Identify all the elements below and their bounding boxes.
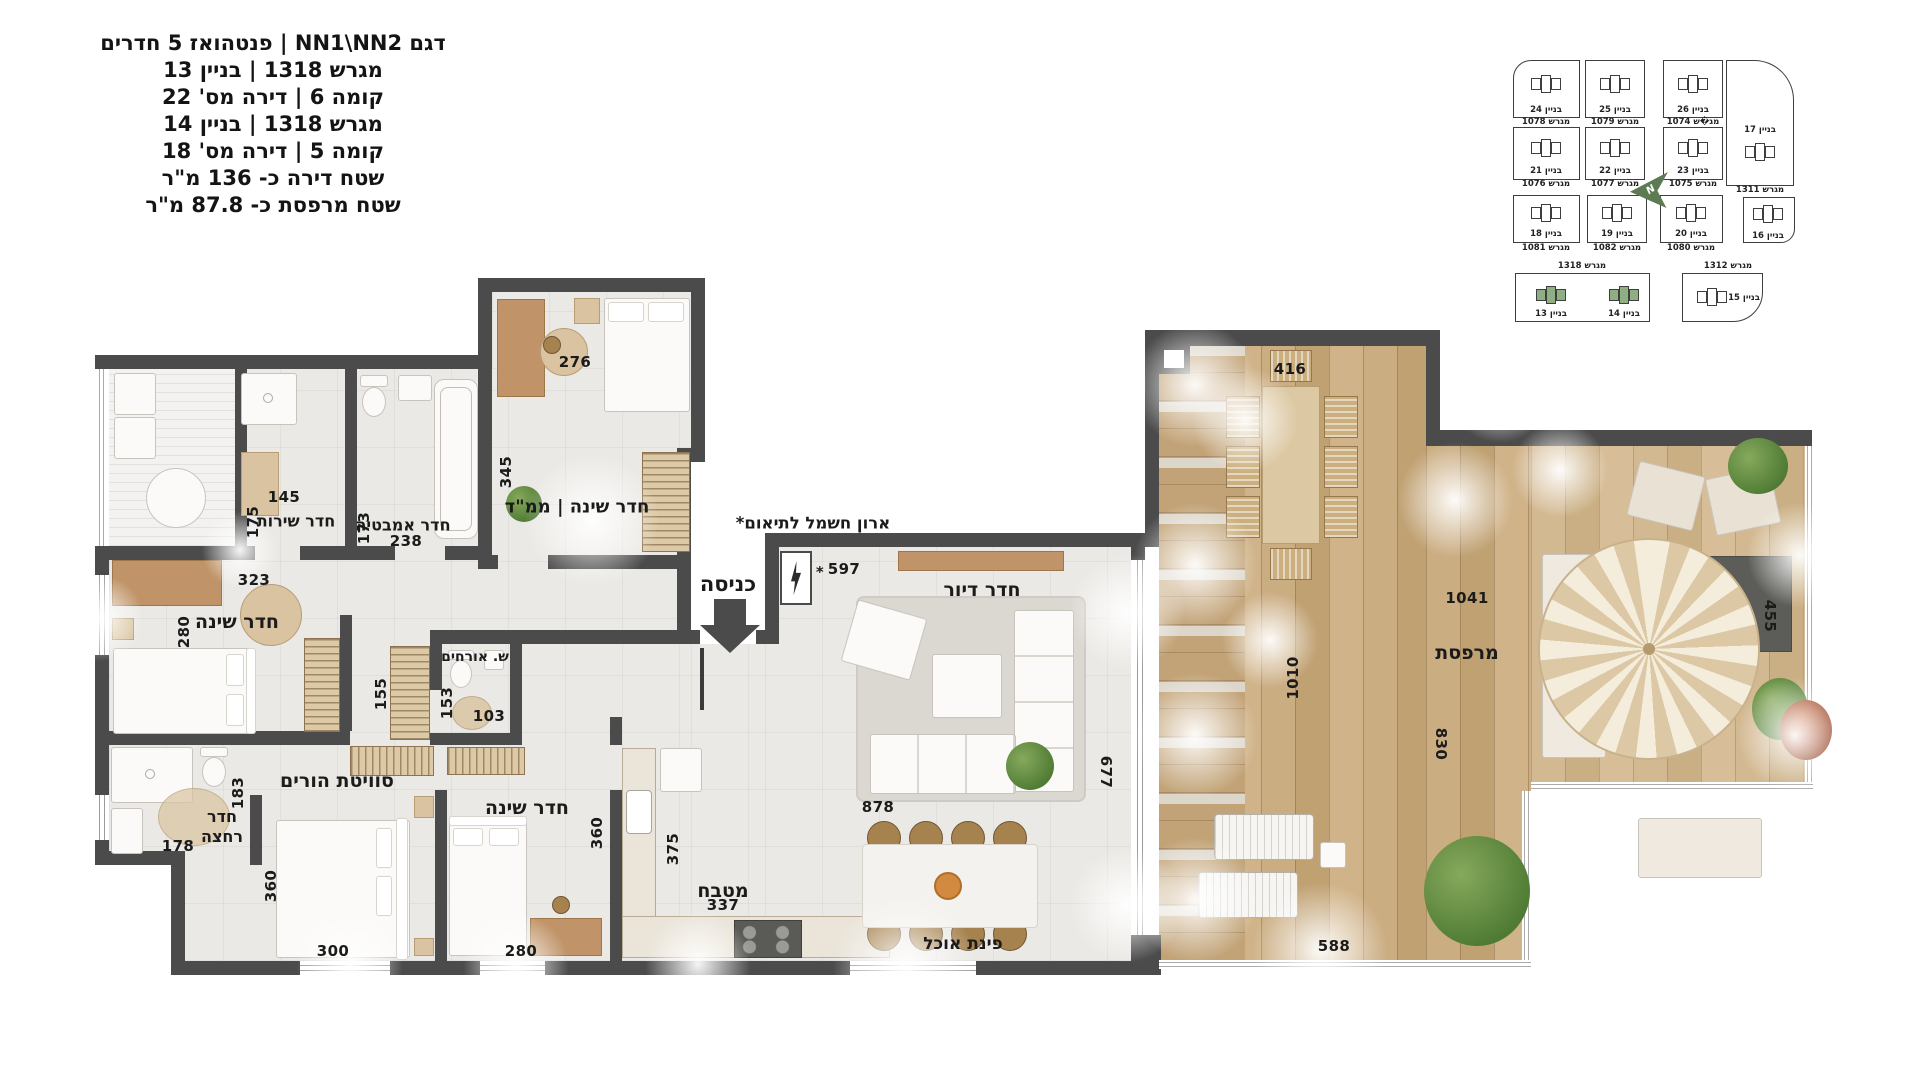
closet <box>447 747 525 775</box>
drain <box>145 769 155 779</box>
boiler <box>146 468 206 528</box>
site-lot-17 <box>1726 60 1794 186</box>
deck-railing <box>1159 960 1531 969</box>
dim: 238 <box>390 532 423 550</box>
wall <box>691 278 705 462</box>
dim: 280 <box>175 616 193 649</box>
deck-chair <box>1226 396 1260 438</box>
dim: 173 <box>355 512 373 545</box>
deck-chair <box>1270 548 1312 580</box>
dim: 375 <box>664 833 682 866</box>
building-footprint-icon-highlighted <box>1536 286 1566 304</box>
room-label-living: חדר דיור <box>943 579 1020 601</box>
tree <box>1424 836 1530 946</box>
room-label-dining: פינת אוכל <box>923 934 1003 954</box>
dim: 323 <box>238 571 271 589</box>
plant <box>1728 438 1788 494</box>
chair <box>543 336 561 354</box>
dim: 276 <box>559 353 592 371</box>
lot-parcel-label: מגרש 1076 <box>1522 179 1570 189</box>
dim-597: 597 <box>828 560 861 578</box>
plant <box>1006 742 1054 790</box>
title-line: מגרש 1318 | בניין 13 <box>100 57 446 84</box>
lot-building-label: בניין 24 <box>1530 105 1562 115</box>
deck-column <box>1158 344 1190 374</box>
wall <box>765 533 779 644</box>
lot-parcel-label: מגרש 1075 <box>1669 179 1717 189</box>
dim: 183 <box>229 777 247 810</box>
room-label-mamad: חדר שינה | ממ"ד <box>505 497 650 518</box>
building-footprint-icon <box>1745 143 1775 161</box>
light-glow <box>1445 335 1555 445</box>
building-footprint-icon <box>1676 204 1706 222</box>
dim: 300 <box>317 942 350 960</box>
building-footprint-icon <box>1531 139 1561 157</box>
pillow <box>453 828 483 846</box>
building-footprint-icon <box>1678 75 1708 93</box>
deck-chair <box>1324 496 1358 538</box>
drain <box>263 393 273 403</box>
dim: 360 <box>588 817 606 850</box>
washer <box>114 373 156 415</box>
lot-building-label: בניין 20 <box>1675 229 1707 239</box>
sink <box>398 375 432 401</box>
wall <box>548 555 691 569</box>
dim: 155 <box>372 678 390 711</box>
entrance-label: כניסה <box>700 572 756 596</box>
coffee-table <box>932 654 1002 718</box>
lot-building-label: בניין 17 <box>1744 125 1776 135</box>
window <box>300 961 390 975</box>
wall <box>610 790 622 961</box>
deck-chair <box>1226 446 1260 488</box>
room-label-balcony: מרפסת <box>1435 642 1499 664</box>
dim: 416 <box>1274 360 1307 378</box>
building-footprint-icon <box>1531 204 1561 222</box>
wall <box>340 615 352 731</box>
wall <box>171 961 300 975</box>
lot-building-label: בניין 25 <box>1599 105 1631 115</box>
hall-closet <box>390 646 430 740</box>
umbrella-pole <box>1643 643 1655 655</box>
pillow <box>226 654 244 686</box>
lot-parcel-label: מגרש 1079 <box>1591 117 1639 127</box>
electrical-note: ארון חשמל לתיאום* <box>736 514 890 533</box>
kitchen-sink <box>626 790 652 834</box>
wall <box>478 278 705 292</box>
building-footprint-icon <box>1602 204 1632 222</box>
wall <box>478 555 498 569</box>
wall <box>445 546 478 560</box>
room-label-bedroom-left: חדר שינה <box>195 611 279 633</box>
lot-building-label: בניין 26 <box>1677 105 1709 115</box>
balcony-louver-edge <box>97 369 106 546</box>
wall <box>300 546 395 560</box>
bathtub-inner <box>440 387 472 531</box>
room-label-guest-wc: ש. אורחים <box>441 649 509 665</box>
parcel-1312-label: מגרש 1312 <box>1704 261 1752 271</box>
dim: 337 <box>707 896 740 914</box>
headboard <box>396 818 408 960</box>
deck-wall <box>1145 330 1159 547</box>
entry-door-leaf <box>700 648 704 710</box>
sofa <box>870 734 1016 794</box>
deck-wall <box>1426 330 1440 446</box>
wall <box>390 961 480 975</box>
pillow <box>376 876 392 916</box>
fridge <box>660 748 702 792</box>
deck-chair <box>1226 496 1260 538</box>
toilet-bowl <box>202 757 226 787</box>
deck-chair <box>1324 396 1358 438</box>
lot-parcel-label: מגרש 1077 <box>1591 179 1639 189</box>
wall <box>95 655 109 795</box>
desk <box>497 299 545 397</box>
sun-lounger <box>1198 872 1298 918</box>
title-line: שטח מרפסת כ- 87.8 מ"ר <box>100 192 446 219</box>
window <box>95 575 109 655</box>
outdoor-dining-table <box>1262 386 1320 544</box>
lot-building-label: בניין 16 <box>1752 231 1784 241</box>
room-label-shower-room: חדר רחצה <box>191 807 253 847</box>
plant-red <box>1780 700 1832 760</box>
dim: 178 <box>162 837 195 855</box>
fruit-bowl <box>934 872 962 900</box>
deck-railing <box>1531 782 1813 791</box>
dim: 280 <box>505 942 538 960</box>
wall <box>478 369 492 555</box>
wall <box>95 546 109 575</box>
sun-lounger <box>1214 814 1314 860</box>
pillow <box>226 694 244 726</box>
title-line: מגרש 1318 | בניין 14 <box>100 111 446 138</box>
title-line: דגם NN1\NN2 | פנטהואז 5 חדרים <box>100 30 446 57</box>
wall <box>478 292 492 369</box>
toilet <box>360 375 388 387</box>
room-label-master: סוויטת הורים <box>280 770 394 792</box>
building-footprint-icon <box>1678 139 1708 157</box>
lot-parcel-label: מג�ש 1074 <box>1667 117 1720 127</box>
wall <box>171 865 185 975</box>
floorplan-page: דגם NN1\NN2 | פנטהואז 5 חדרים מגרש 1318 … <box>0 0 1920 1080</box>
lot-building-label: בניין 13 <box>1535 309 1567 319</box>
building-footprint-icon-highlighted <box>1609 286 1639 304</box>
pillow <box>489 828 519 846</box>
pillow <box>608 302 644 322</box>
entrance-arrow-shaft <box>714 599 746 625</box>
nightstand <box>414 938 434 956</box>
wall <box>109 546 255 560</box>
nightstand <box>574 298 600 324</box>
side-table <box>1320 842 1346 868</box>
parcel-1318-label: מגרש 1318 <box>1558 261 1606 271</box>
nightstand <box>112 618 134 640</box>
stove <box>734 920 802 958</box>
desk <box>530 918 602 956</box>
building-footprint-icon <box>1697 288 1727 306</box>
window <box>95 795 109 840</box>
desk <box>112 560 222 606</box>
dim: 588 <box>1318 937 1351 955</box>
wall <box>545 961 850 975</box>
nightstand <box>414 796 434 818</box>
dim: 175 <box>244 506 262 539</box>
dim: 345 <box>497 456 515 489</box>
dim: 455 <box>1761 600 1779 633</box>
outdoor-sofa <box>1638 818 1762 878</box>
chair <box>552 896 570 914</box>
room-label-bedroom-mid: חדר שינה <box>485 797 569 819</box>
lot-building-label: בניין 14 <box>1608 309 1640 319</box>
wardrobe <box>304 638 340 732</box>
dim: 830 <box>1432 728 1450 761</box>
building-footprint-icon <box>1753 205 1783 223</box>
title-line: קומה 5 | דירה מס' 18 <box>100 138 446 165</box>
tv-console <box>898 551 1064 571</box>
title-block: דגם NN1\NN2 | פנטהואז 5 חדרים מגרש 1318 … <box>100 30 446 219</box>
wall <box>779 533 1145 547</box>
lot-parcel-label: מגרש 1082 <box>1593 243 1641 253</box>
window <box>480 961 545 975</box>
dryer <box>114 417 156 459</box>
toilet <box>200 747 228 757</box>
wall <box>976 961 1145 975</box>
lot-parcel-label: מגרש 1080 <box>1667 243 1715 253</box>
wall <box>430 630 700 644</box>
building-footprint-icon <box>1600 139 1630 157</box>
building-footprint-icon <box>1600 75 1630 93</box>
building-footprint-icon <box>1531 75 1561 93</box>
dim: 103 <box>473 707 506 725</box>
headboard <box>246 648 256 734</box>
deck-chair <box>1324 446 1358 488</box>
pillow <box>376 828 392 868</box>
pillow <box>648 302 684 322</box>
title-line: שטח דירה כ- 136 מ"ר <box>100 165 446 192</box>
lot-building-label: בניין 19 <box>1601 229 1633 239</box>
toilet-bowl <box>362 387 386 417</box>
deck-wall <box>1131 547 1145 560</box>
dim: 360 <box>262 870 280 903</box>
title-line: קומה 6 | דירה מס' 22 <box>100 84 446 111</box>
window <box>850 961 976 975</box>
room-label-service: חדר שירות <box>257 512 336 531</box>
glazing-living-deck <box>1133 560 1143 935</box>
lot-parcel-label: מגרש 1311 <box>1736 185 1784 195</box>
lot-building-label: בניין 21 <box>1530 166 1562 176</box>
mask <box>93 865 171 987</box>
light-glow <box>1595 890 1725 1020</box>
lot-parcel-label: מגרש 1078 <box>1522 117 1570 127</box>
lot-building-label: בניין 22 <box>1599 166 1631 176</box>
asterisk: * <box>816 563 824 581</box>
wall <box>430 733 522 745</box>
wall <box>510 644 522 745</box>
lot-parcel-label: מגרש 1081 <box>1522 243 1570 253</box>
dim: 153 <box>438 687 456 720</box>
lot-building-label: בניין 15 <box>1728 293 1760 303</box>
wall <box>610 717 622 745</box>
lot-building-label: בניין 18 <box>1530 229 1562 239</box>
vanity <box>111 808 143 854</box>
wall <box>95 355 492 369</box>
dim: 1041 <box>1445 589 1488 607</box>
dim: 878 <box>862 798 895 816</box>
pergola-beams <box>1159 346 1245 961</box>
wall <box>435 790 447 961</box>
lot-building-label: בניין 23 <box>1677 166 1709 176</box>
deck-pillar <box>1131 935 1161 975</box>
dim: 1010 <box>1284 656 1302 699</box>
dim: 677 <box>1097 756 1115 789</box>
dim: 145 <box>268 488 301 506</box>
